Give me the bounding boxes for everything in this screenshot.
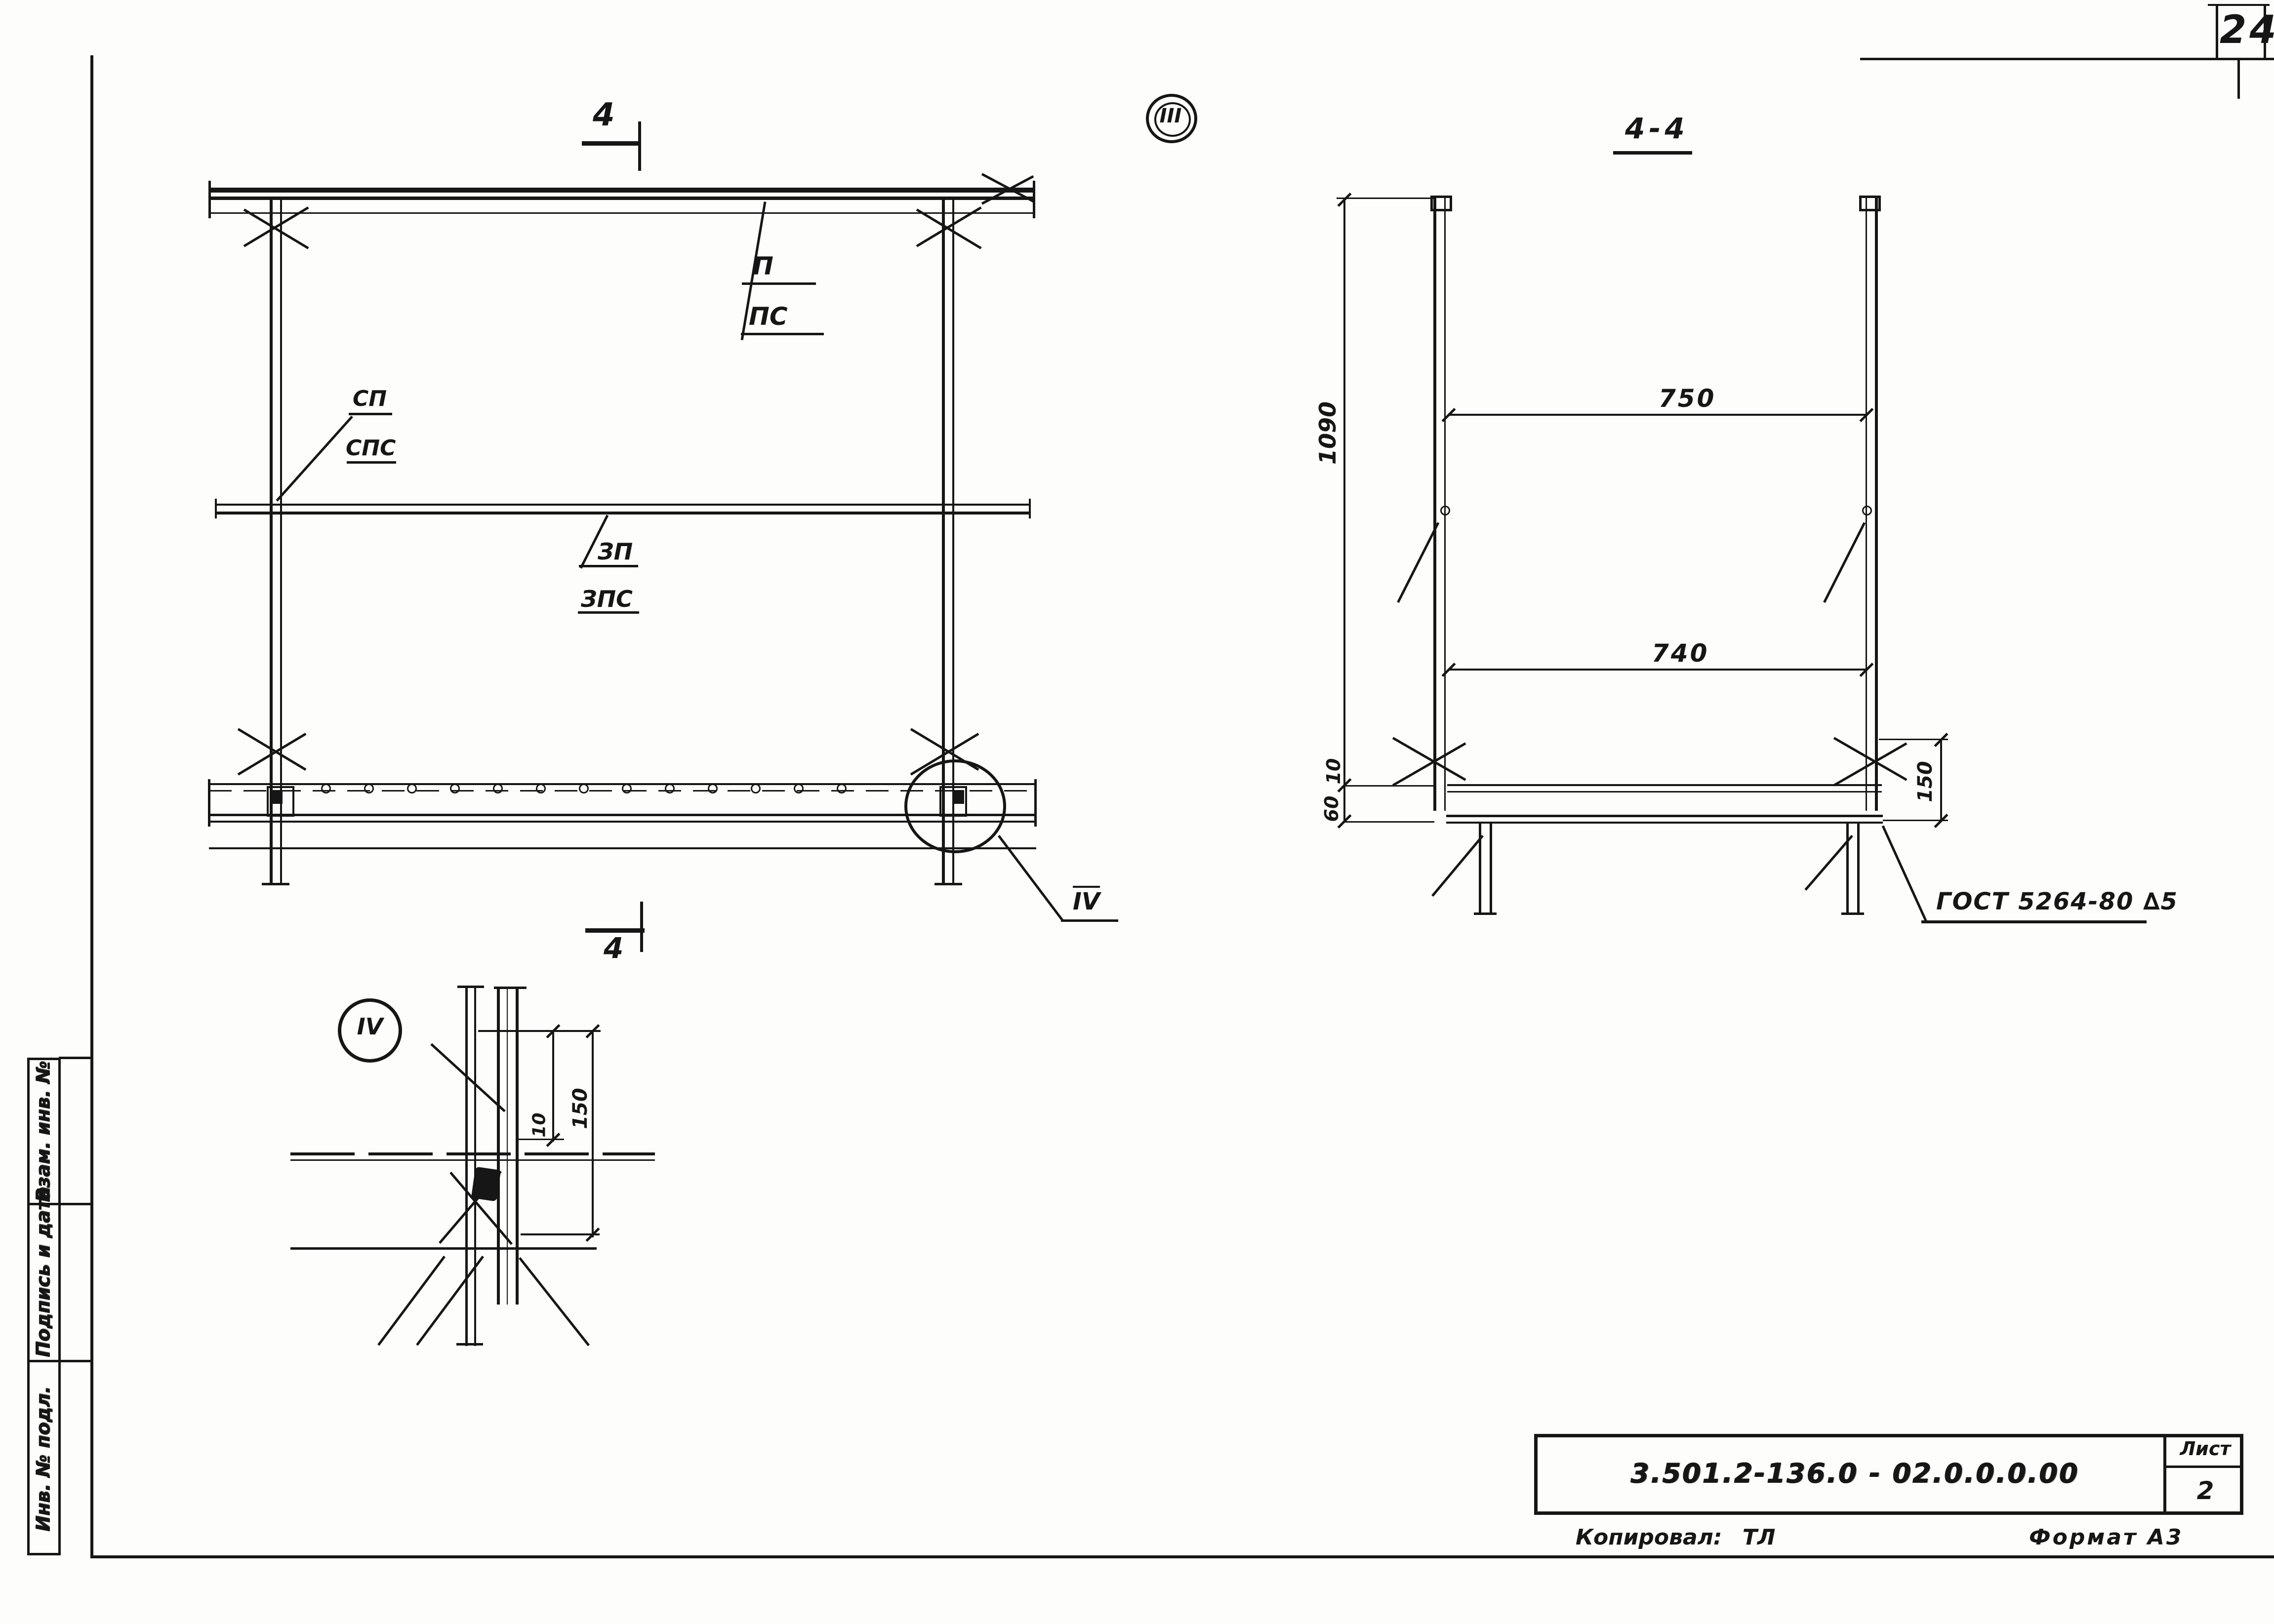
middle-rail-line: [216, 504, 1031, 506]
seat-end-cap: [208, 779, 210, 827]
dim-line-150: [1940, 740, 1942, 822]
seat-line: [1446, 815, 1883, 817]
copied-by-signature: ТЛ: [1743, 1525, 1776, 1550]
bolt-circle: [751, 784, 761, 793]
leg-line: [1490, 824, 1492, 914]
weld-note: ГОСТ 5264-80 ∆5: [1936, 888, 2178, 915]
seat-line: [1446, 822, 1883, 824]
bolt-circle: [364, 784, 374, 793]
middle-rail-line: [216, 512, 1031, 515]
callout-underline: [741, 333, 824, 335]
dim-line-150: [592, 1030, 594, 1237]
callout-underline: [742, 282, 816, 285]
dim-value: 60: [1321, 779, 1342, 838]
detail-post-line: [516, 987, 519, 1305]
format-note: Формат А3: [2029, 1525, 2184, 1550]
bolt-circle: [1440, 506, 1450, 515]
detail-post-foot: [456, 1343, 483, 1346]
section-cut-line: [582, 141, 641, 146]
section-left-post-line: [1433, 196, 1436, 811]
dim-line-750: [1448, 414, 1866, 416]
margin-stamp-label: Подпись и дата: [32, 1209, 54, 1357]
margin-stamp-connector: [59, 1057, 92, 1059]
extension-line: [1879, 739, 1948, 740]
frame-tick: [2237, 59, 2240, 99]
section-right-post-line: [1875, 196, 1878, 811]
section-cut-number: 4: [593, 97, 615, 133]
leader-line: [519, 1257, 590, 1346]
weld-x-mark: [1833, 737, 1908, 781]
dim-value: 10: [529, 1096, 550, 1155]
post-foot-cap: [934, 883, 962, 885]
leader-line: [276, 416, 353, 502]
frame-top-right-border: [1860, 58, 2274, 60]
callout-label: ПС: [749, 302, 788, 331]
callout-label: ЗП: [598, 538, 633, 565]
bolt-circle: [493, 784, 503, 793]
leg-line: [1857, 824, 1860, 914]
frame-bottom-border: [90, 1555, 2274, 1558]
seat-line: [1447, 791, 1882, 792]
frame-left-border: [90, 55, 93, 1558]
margin-stamp-connector: [59, 1203, 92, 1205]
section-cut-bar: [640, 902, 643, 952]
leader-line: [430, 1043, 506, 1112]
margin-stamp-divider: [27, 1360, 61, 1362]
dim-value: 740: [1652, 639, 1709, 668]
section-cut-number: 4: [604, 931, 623, 965]
margin-stamp-label: Взам. инв. №: [32, 1058, 54, 1206]
dim-value: 150: [1914, 742, 1937, 821]
dim-value: 150: [569, 1059, 592, 1158]
detail-marker-label: IV: [338, 1013, 402, 1040]
bolt-circle: [622, 784, 632, 793]
seat-end-cap: [1034, 779, 1037, 827]
copied-by: Копировал: ТЛ: [1576, 1525, 1775, 1550]
extension-line: [521, 1233, 600, 1235]
margin-stamp-label: Инв. № подл.: [32, 1385, 54, 1533]
drawing-sheet: 24 Взам. инв. № Подпись и дата Инв. № по…: [0, 0, 2274, 1624]
extension-line: [478, 1030, 601, 1032]
leader-line: [1823, 522, 1866, 603]
bolt-circle: [708, 784, 718, 793]
view-ref-label: III: [1156, 105, 1185, 127]
weld-fill: [471, 1167, 501, 1202]
leader-underline: [1921, 920, 2147, 923]
detail-post-line: [497, 987, 500, 1305]
bolt-circle: [536, 784, 546, 793]
detail-lower-line: [290, 1247, 597, 1250]
callout-underline: [347, 461, 396, 464]
callout-label: П: [753, 252, 773, 280]
dim-value: 750: [1659, 384, 1716, 413]
title-block-divider: [2163, 1434, 2166, 1515]
seat-bracket-weld: [271, 790, 283, 804]
weld-x-mark: [1392, 737, 1466, 781]
leader-line: [439, 1171, 502, 1244]
seat-line: [1447, 784, 1882, 786]
dim-value: 1090: [1314, 359, 1341, 507]
section-left-post-line: [1444, 196, 1446, 811]
leader-line: [1882, 825, 1928, 922]
leg-foot-cap: [1841, 912, 1864, 915]
detail-post-line: [465, 986, 468, 1346]
bolt-circle: [794, 784, 804, 793]
dim-line-1090: [1343, 198, 1345, 823]
detail-post-cap: [457, 986, 484, 988]
section-title: 4-4: [1625, 112, 1689, 145]
detail-post-line: [474, 986, 476, 1346]
extension-line: [1337, 198, 1435, 199]
copied-by-label: Копировал:: [1576, 1525, 1722, 1550]
leader-line: [377, 1256, 446, 1346]
detail-seat-line: [290, 1152, 655, 1155]
leader-underline: [1061, 919, 1118, 922]
section-title-underline: [1613, 151, 1692, 155]
weld-x-mark: [1833, 742, 1908, 786]
sheet-value: 2: [2173, 1476, 2237, 1505]
bolt-circle: [579, 784, 589, 793]
rail-end-cap: [208, 181, 211, 218]
post-foot-cap: [262, 883, 289, 885]
node-ref-label: IV: [1073, 888, 1100, 915]
section-cut-bar: [638, 121, 641, 171]
top-rail-line: [210, 197, 1035, 200]
detail-reference-circle: [904, 759, 1006, 853]
middle-rail-end-cap: [215, 499, 217, 518]
leg-foot-cap: [1474, 912, 1497, 915]
detail-post-line: [507, 987, 508, 1305]
bolt-circle: [407, 784, 417, 793]
page-number-box-top: [2208, 4, 2270, 6]
margin-stamp-connector: [59, 1360, 92, 1362]
top-rail-line: [210, 188, 1035, 193]
callout-underline: [349, 413, 392, 415]
weld-x-mark: [1392, 742, 1466, 786]
callout-label: СП: [353, 386, 387, 411]
detail-post-cap: [494, 987, 527, 989]
callout-underline: [579, 565, 638, 567]
bolt-circle: [321, 784, 331, 793]
left-post-line: [280, 197, 282, 885]
bolt-circle: [450, 784, 460, 793]
top-rail-line: [210, 212, 1035, 214]
dim-line-10: [552, 1030, 554, 1142]
left-post-line: [270, 197, 273, 885]
extension-line: [1344, 785, 1434, 787]
doc-number: 3.501.2-136.0 - 02.0.0.0.00: [1551, 1458, 2158, 1489]
bolt-circle: [665, 784, 675, 793]
middle-rail-end-cap: [1029, 499, 1031, 518]
page-number: 24: [2220, 8, 2274, 52]
section-right-post-line: [1866, 196, 1867, 811]
weld-x-mark: [916, 208, 982, 249]
seat-line: [209, 847, 1036, 849]
detail-seat-line: [290, 1159, 655, 1161]
extension-line: [1344, 821, 1434, 823]
weld-x-mark: [244, 208, 309, 249]
bolt-circle: [837, 784, 847, 793]
leader-line: [1431, 835, 1484, 897]
bolt-circle: [1862, 506, 1872, 515]
callout-label: СПС: [346, 436, 396, 461]
post-top-cap: [1859, 196, 1881, 211]
page-number-box-left: [2216, 4, 2218, 59]
title-block-divider: [2163, 1466, 2243, 1468]
callout-label: ЗПС: [581, 586, 633, 612]
dim-line-740: [1448, 669, 1866, 671]
sheet-label: Лист: [2173, 1438, 2237, 1460]
